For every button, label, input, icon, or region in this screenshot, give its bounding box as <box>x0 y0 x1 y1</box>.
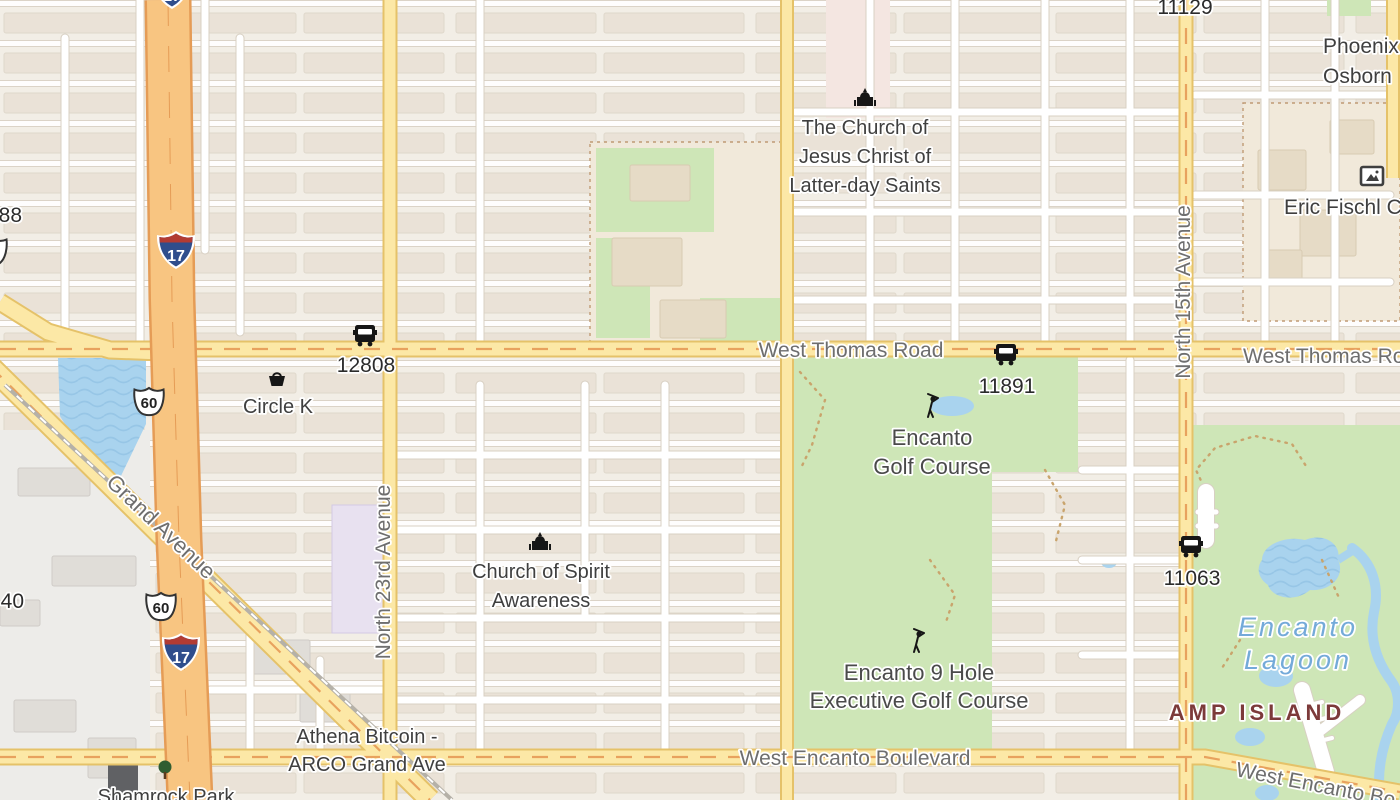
north-23rd-avenue-label: North 23rd Avenue <box>372 485 395 660</box>
park-pond-b <box>1235 728 1265 746</box>
bus-stop-11891: 11891 <box>979 375 1036 398</box>
west-thomas-road-label-right: West Thomas Ro <box>1243 345 1400 368</box>
map-tiles: 171717606060West Thomas RoadWest Thomas … <box>0 0 1400 800</box>
art-icon[interactable] <box>1361 167 1383 185</box>
north-15th-avenue-label: North 15th Avenue <box>1172 205 1195 379</box>
freeway-layer <box>168 0 190 800</box>
campus-building <box>660 300 726 338</box>
campus-building <box>612 238 682 286</box>
shamrock-park-label: Shamrock Park <box>98 786 236 800</box>
lds-church-label: The Church ofJesus Christ ofLatter-day S… <box>789 117 940 197</box>
clipped-number-40: 40 <box>1 590 24 613</box>
us-60-shield: 60 <box>146 593 176 620</box>
eric-fischl-label: Eric Fischl C <box>1284 196 1400 219</box>
svg-text:17: 17 <box>172 650 190 667</box>
svg-text:60: 60 <box>141 395 158 412</box>
amp-island-label: AMP ISLAND <box>1169 700 1346 725</box>
svg-text:17: 17 <box>163 0 181 5</box>
svg-text:60: 60 <box>153 600 170 617</box>
svg-text:17: 17 <box>167 248 185 265</box>
building <box>52 556 136 586</box>
building <box>14 700 76 732</box>
freeway-i17-mainline <box>168 0 190 800</box>
us-60-shield: 60 <box>134 388 164 415</box>
west-encanto-boulevard-label: West Encanto Boulevard <box>740 747 971 770</box>
building <box>18 468 90 496</box>
bus-stop-12808: 12808 <box>337 354 395 377</box>
map-canvas[interactable]: 171717606060West Thomas RoadWest Thomas … <box>0 0 1400 800</box>
circle-k-label: Circle K <box>243 396 314 418</box>
bus-stop-11063: 11063 <box>1164 567 1221 590</box>
bus-stop-11129: 11129 <box>1157 0 1212 19</box>
clipped-number-88: 88 <box>0 204 22 227</box>
west-thomas-road-label: West Thomas Road <box>759 339 944 362</box>
campus-building <box>630 165 690 201</box>
